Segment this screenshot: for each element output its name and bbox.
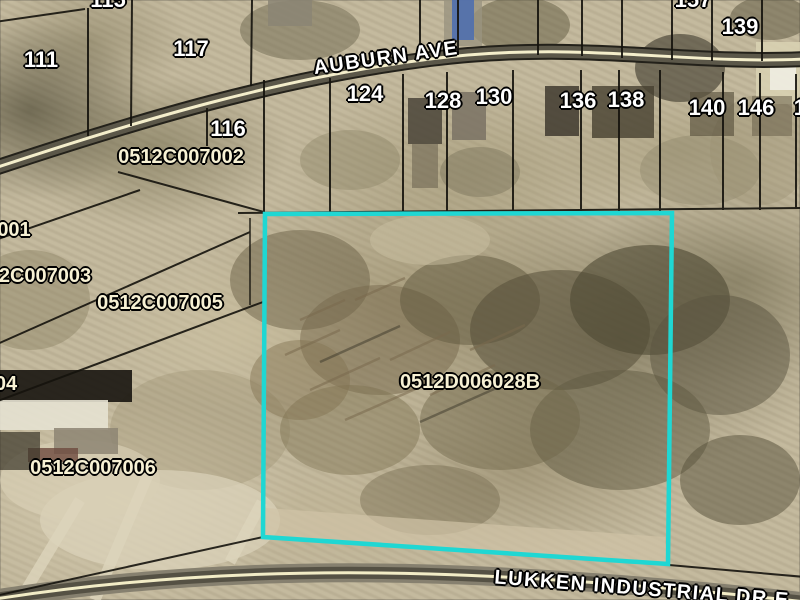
- parcel-id-label: 2C007003: [0, 266, 91, 286]
- blue-roof-house: [452, 0, 474, 40]
- parcel-id-label: 0512C007006: [30, 458, 156, 478]
- house-number-label: 138: [608, 89, 645, 111]
- house-number-label: 116: [210, 118, 246, 140]
- parcel-id-label: 001: [0, 220, 31, 240]
- map-viewport[interactable]: 1151571111171391161241281301361381401461…: [0, 0, 800, 600]
- house-number-label: 14: [794, 97, 800, 119]
- house-number-label: 124: [347, 83, 384, 105]
- parcel-id-label: 0512C007002: [118, 147, 244, 167]
- house-number-label: 146: [738, 97, 775, 119]
- house-number-label: 140: [689, 97, 726, 119]
- house-number-label: 115: [90, 0, 126, 11]
- house-number-label: 136: [560, 90, 597, 112]
- house-number-label: 139: [722, 16, 759, 38]
- house-number-label: 128: [425, 90, 462, 112]
- house-number-label: 130: [476, 86, 513, 108]
- parcel-id-label: 0512C007005: [97, 293, 223, 313]
- house-number-label: 111: [24, 49, 58, 71]
- parcel-id-label: 04: [0, 374, 17, 394]
- house-number-label: 117: [173, 38, 209, 60]
- parcel-id-label: 0512D006028B: [400, 372, 540, 392]
- house-number-label: 157: [675, 0, 712, 11]
